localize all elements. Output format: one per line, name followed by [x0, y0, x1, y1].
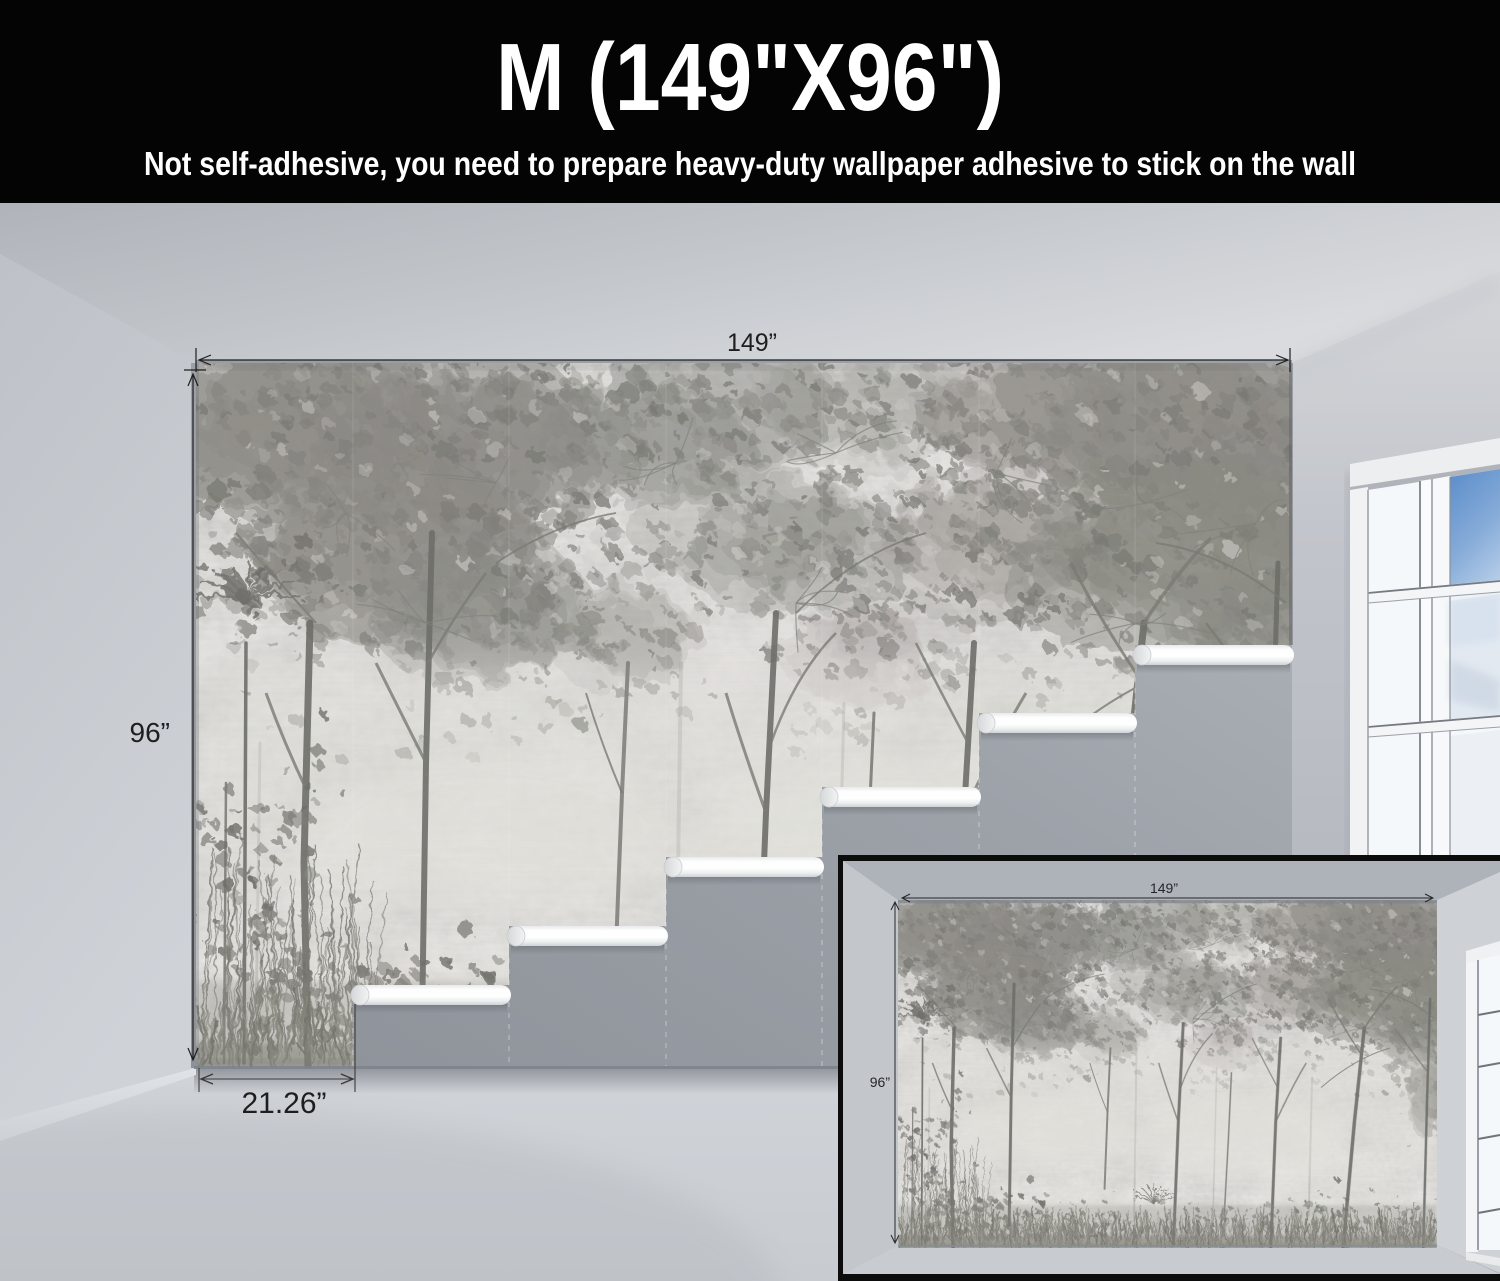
svg-text:96”: 96” [130, 717, 170, 748]
svg-text:M (149"X96"): M (149"X96") [496, 24, 1004, 131]
svg-text:21.26”: 21.26” [241, 1087, 326, 1120]
svg-text:149”: 149” [1150, 880, 1178, 896]
svg-text:Not self-adhesive, you need to: Not self-adhesive, you need to prepare h… [144, 145, 1356, 182]
svg-text:96”: 96” [870, 1074, 891, 1090]
svg-text:149”: 149” [727, 329, 777, 357]
